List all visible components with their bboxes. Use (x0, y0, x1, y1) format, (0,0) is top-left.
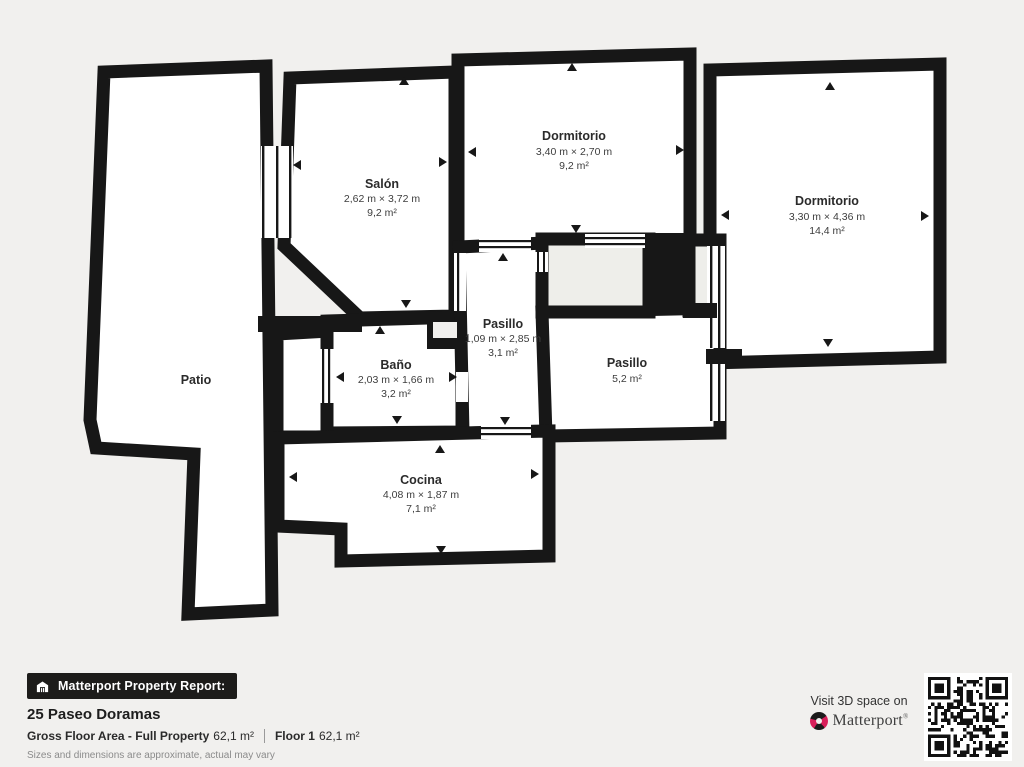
floor-value: 62,1 m² (319, 729, 360, 743)
brand-row: Matterport® (796, 712, 922, 730)
label-dormitorio2-area: 14,4 m² (809, 225, 845, 237)
visit-3d-text: Visit 3D space on (796, 694, 922, 708)
property-address: 25 Paseo Doramas (27, 706, 360, 723)
disclaimer-text: Sizes and dimensions are approximate, ac… (27, 750, 360, 761)
floor-area-line: Gross Floor Area - Full Property 62,1 m²… (27, 729, 360, 743)
trademark-symbol: ® (903, 713, 909, 721)
label-salon-dims: 2,62 m × 3,72 m (344, 193, 420, 205)
closet-1 (542, 239, 649, 312)
gfa-label: Gross Floor Area - Full Property (27, 729, 209, 743)
floor-plan: Patio Salón 2,62 m × 3,72 m 9,2 m² Dormi… (0, 0, 1024, 660)
label-salon-name: Salón (365, 177, 399, 191)
matterport-logo-icon (810, 712, 828, 730)
matterport-wordmark: Matterport® (833, 712, 909, 730)
label-cocina-dims: 4,08 m × 1,87 m (383, 489, 459, 501)
label-pasillo2-name: Pasillo (607, 356, 648, 370)
label-pasillo1-area: 3,1 m² (488, 347, 518, 359)
qr-code (924, 673, 1012, 761)
label-salon-area: 9,2 m² (367, 207, 397, 219)
label-dormitorio1-dims: 3,40 m × 2,70 m (536, 146, 612, 158)
label-dormitorio2-dims: 3,30 m × 4,36 m (789, 211, 865, 223)
property-report-page: { "colors": { "background": "#f1f0ee", "… (0, 0, 1024, 767)
label-dormitorio2-name: Dormitorio (795, 194, 859, 208)
gfa-value: 62,1 m² (213, 729, 254, 743)
label-patio-name: Patio (181, 373, 212, 387)
label-bano-name: Baño (380, 358, 412, 372)
label-pasillo1-name: Pasillo (483, 317, 524, 331)
report-badge: Matterport Property Report: (27, 673, 237, 699)
bano-notch (427, 322, 461, 349)
divider (264, 729, 265, 743)
label-dormitorio1-area: 9,2 m² (559, 160, 589, 172)
label-cocina-area: 7,1 m² (406, 503, 436, 515)
building-icon (35, 679, 50, 694)
label-pasillo1-dims: 1,09 m × 2,85 m (465, 333, 541, 345)
label-bano-area: 3,2 m² (381, 388, 411, 400)
report-footer: Matterport Property Report: 25 Paseo Dor… (27, 673, 360, 761)
label-bano-dims: 2,03 m × 1,66 m (358, 374, 434, 386)
report-badge-label: Matterport Property Report: (58, 679, 225, 693)
room-patio (90, 66, 272, 614)
visit-3d-cta: Visit 3D space on Matterport® (796, 694, 922, 730)
label-pasillo2-area: 5,2 m² (612, 373, 642, 385)
label-cocina-name: Cocina (400, 473, 443, 487)
label-dormitorio1-name: Dormitorio (542, 129, 606, 143)
room-pasillo2 (542, 308, 720, 436)
floor-label: Floor 1 (275, 729, 315, 743)
